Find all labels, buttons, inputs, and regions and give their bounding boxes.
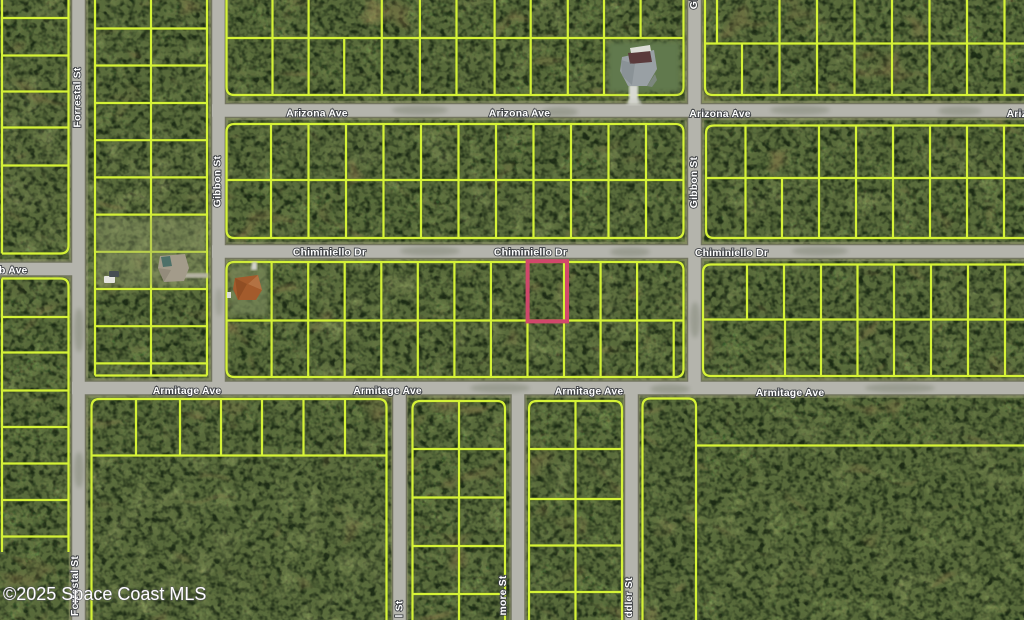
svg-text:Chiminiello Dr: Chiminiello Dr: [494, 248, 567, 259]
svg-text:ddler St: ddler St: [624, 577, 635, 618]
svg-text:©2025 Space Coast MLS: ©2025 Space Coast MLS: [3, 584, 206, 604]
svg-text:Chiminiello Dr: Chiminiello Dr: [293, 248, 366, 259]
svg-text:Gibbon St: Gibbon St: [213, 155, 224, 207]
svg-text:b Ave: b Ave: [0, 266, 28, 277]
svg-text:more St: more St: [498, 575, 509, 615]
svg-text:Arizona Ave: Arizona Ave: [286, 109, 347, 120]
svg-text:Chiminiello Dr: Chiminiello Dr: [695, 248, 768, 259]
svg-text:Armitage Ave: Armitage Ave: [353, 386, 422, 397]
svg-text:Armitage Ave: Armitage Ave: [555, 387, 624, 398]
svg-text:Arizona Ave: Arizona Ave: [689, 109, 750, 120]
svg-text:Arizona Ave: Arizona Ave: [1007, 109, 1024, 120]
svg-text:l St: l St: [395, 600, 406, 617]
svg-text:Armitage Ave: Armitage Ave: [756, 388, 825, 399]
svg-text:Forrestal St: Forrestal St: [73, 67, 84, 127]
svg-text:Gibbon St: Gibbon St: [689, 0, 700, 9]
svg-text:Armitage Ave: Armitage Ave: [153, 386, 222, 397]
svg-text:Arizona Ave: Arizona Ave: [489, 109, 550, 120]
svg-text:Gibbon St: Gibbon St: [689, 156, 700, 208]
